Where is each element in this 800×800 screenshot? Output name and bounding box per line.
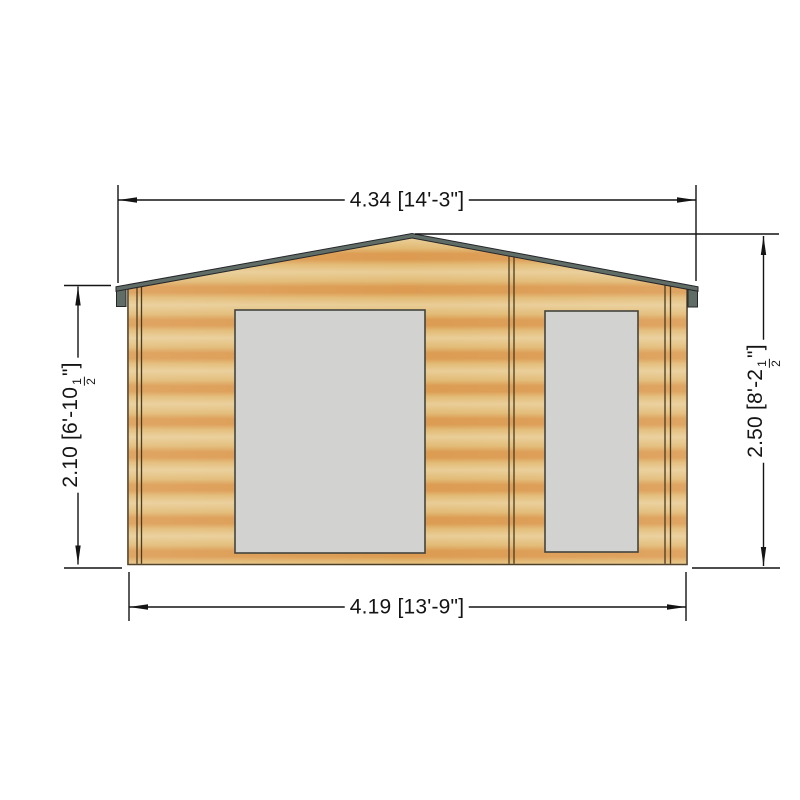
fraction: 12: [71, 377, 97, 386]
dimension-text-suffix: "]: [744, 344, 767, 358]
drawing-svg: [0, 0, 800, 800]
arrowhead: [677, 197, 696, 202]
window-opening-right: [545, 311, 638, 552]
dimension-text: 4.19 [13'-9"]: [350, 595, 464, 618]
dimension-label-top: 4.34 [14'-3"]: [345, 188, 469, 211]
dimension-label-left: 2.10 [6'-1012"]: [59, 357, 97, 492]
arrowhead: [667, 604, 686, 609]
fraction: 12: [756, 359, 782, 368]
dimension-text: 4.34 [14'-3"]: [350, 188, 464, 211]
arrowhead: [75, 287, 80, 306]
window-opening-left: [235, 310, 425, 553]
dimension-text: 2.50 [8'-2: [744, 369, 767, 458]
fraction-numerator: 1: [71, 377, 85, 386]
fraction-numerator: 1: [756, 359, 770, 368]
cabin-front-elevation: [116, 234, 698, 565]
dimension-label-bottom: 4.19 [13'-9"]: [345, 595, 469, 618]
arrowhead: [761, 236, 766, 255]
arrowhead: [75, 546, 80, 565]
dimension-label-right: 2.50 [8'-212"]: [744, 339, 782, 462]
arrowhead: [118, 197, 137, 202]
fraction-denominator: 2: [770, 359, 783, 368]
elevation-drawing: 4.34 [14'-3"] 4.19 [13'-9"] 2.10 [6'-101…: [0, 0, 800, 800]
fraction-denominator: 2: [85, 377, 98, 386]
dimension-text-suffix: "]: [59, 362, 82, 376]
arrowhead: [129, 604, 148, 609]
dimension-text: 2.10 [6'-10: [59, 387, 82, 488]
arrowhead: [761, 547, 766, 566]
